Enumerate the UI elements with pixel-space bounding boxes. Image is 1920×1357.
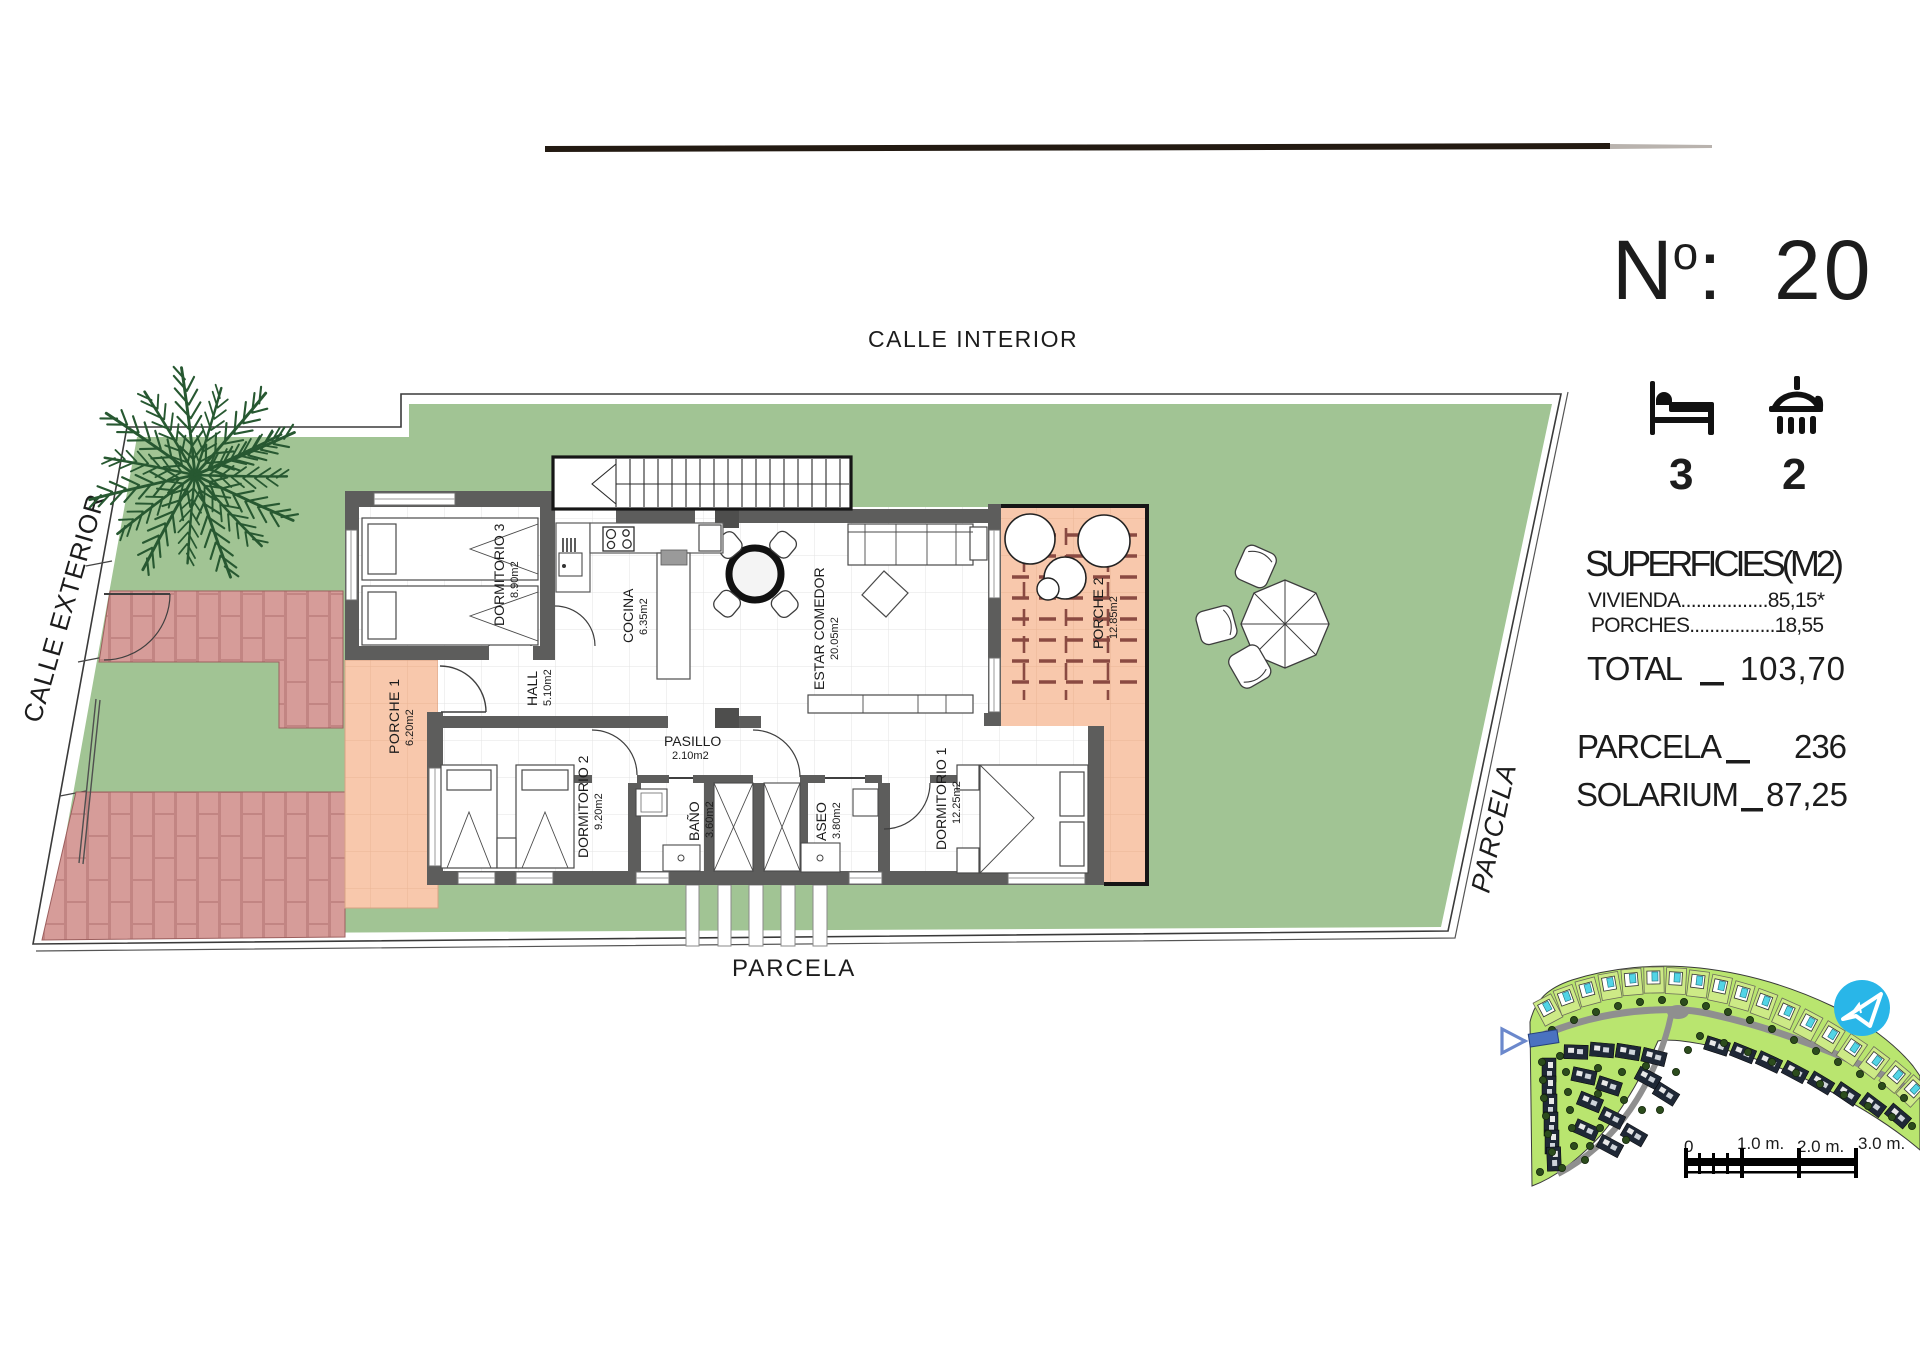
svg-text:ASEO: ASEO xyxy=(813,802,829,841)
svg-text:COCINA: COCINA xyxy=(620,588,636,643)
svg-text:3.0 m.: 3.0 m. xyxy=(1858,1134,1905,1153)
svg-text:DORMITORIO 2: DORMITORIO 2 xyxy=(575,755,591,858)
svg-text:DORMITORIO 3: DORMITORIO 3 xyxy=(491,523,507,626)
svg-text:HALL: HALL xyxy=(524,671,540,706)
svg-text:2.0 m.: 2.0 m. xyxy=(1797,1137,1844,1156)
svg-text:1.0 m.: 1.0 m. xyxy=(1737,1134,1784,1153)
svg-text:236: 236 xyxy=(1794,728,1847,765)
svg-text:VIVIENDA.................85,15: VIVIENDA.................85,15* xyxy=(1588,589,1825,612)
svg-text:5.10m2: 5.10m2 xyxy=(542,669,554,706)
svg-text:SUPERFICIES(M2): SUPERFICIES(M2) xyxy=(1585,543,1844,584)
svg-text:TOTAL: TOTAL xyxy=(1587,650,1683,687)
svg-text:SOLARIUM: SOLARIUM xyxy=(1576,776,1739,813)
svg-text:3.80m2: 3.80m2 xyxy=(831,802,843,839)
svg-text:No:: No: xyxy=(1612,223,1722,317)
svg-text:2: 2 xyxy=(1782,450,1806,499)
svg-text:3: 3 xyxy=(1669,450,1693,499)
svg-text:6.20m2: 6.20m2 xyxy=(404,709,416,746)
svg-text:20: 20 xyxy=(1774,223,1873,317)
svg-text:2.10m2: 2.10m2 xyxy=(672,750,709,762)
svg-text:PASILLO: PASILLO xyxy=(664,733,721,749)
svg-text:9.20m2: 9.20m2 xyxy=(593,793,605,830)
svg-text:PARCELA: PARCELA xyxy=(1577,728,1722,765)
svg-text:DORMITORIO 1: DORMITORIO 1 xyxy=(933,747,949,850)
svg-text:12.85m2: 12.85m2 xyxy=(1108,596,1120,639)
svg-text:PORCHE 1: PORCHE 1 xyxy=(386,678,402,754)
svg-text:BAÑO: BAÑO xyxy=(686,801,702,841)
svg-text:ESTAR COMEDOR: ESTAR COMEDOR xyxy=(811,567,827,690)
svg-text:87,25: 87,25 xyxy=(1766,776,1848,813)
svg-text:103,70: 103,70 xyxy=(1740,650,1845,687)
svg-text:6.35m2: 6.35m2 xyxy=(638,598,650,635)
svg-text:3.60m2: 3.60m2 xyxy=(704,801,716,838)
svg-text:PORCHE 2: PORCHE 2 xyxy=(1090,577,1106,649)
svg-text:PORCHES.................18,55: PORCHES.................18,55 xyxy=(1591,614,1824,637)
svg-text:CALLE INTERIOR: CALLE INTERIOR xyxy=(868,326,1078,352)
svg-text:8.90m2: 8.90m2 xyxy=(509,561,521,598)
svg-text:20.05m2: 20.05m2 xyxy=(829,617,841,660)
svg-text:PARCELA: PARCELA xyxy=(732,955,856,982)
svg-text:12.25m2: 12.25m2 xyxy=(951,781,963,824)
